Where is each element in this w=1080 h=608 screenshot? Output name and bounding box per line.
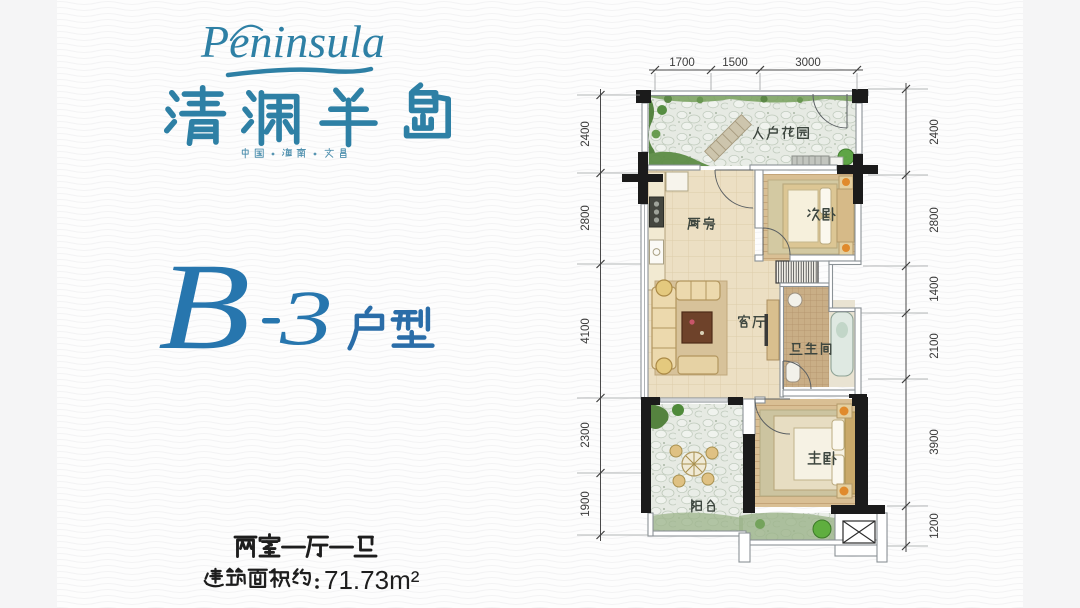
svg-text:3900: 3900 bbox=[929, 429, 941, 455]
svg-text:71.73m²: 71.73m² bbox=[324, 565, 420, 595]
svg-text:2400: 2400 bbox=[580, 121, 592, 147]
svg-text:2800: 2800 bbox=[580, 205, 592, 231]
svg-text:2400: 2400 bbox=[929, 119, 941, 145]
svg-text:2800: 2800 bbox=[929, 207, 941, 233]
svg-text:1700: 1700 bbox=[669, 57, 695, 69]
svg-text:B: B bbox=[158, 238, 250, 375]
svg-text:Peninsula: Peninsula bbox=[200, 16, 385, 67]
svg-text:3000: 3000 bbox=[795, 57, 821, 69]
svg-text:2300: 2300 bbox=[580, 422, 592, 448]
svg-text:1500: 1500 bbox=[722, 57, 748, 69]
svg-text:1200: 1200 bbox=[929, 513, 941, 539]
svg-text:3: 3 bbox=[279, 275, 333, 362]
svg-text:1400: 1400 bbox=[929, 276, 941, 302]
svg-text:2100: 2100 bbox=[929, 333, 941, 359]
svg-text:1900: 1900 bbox=[580, 491, 592, 517]
svg-text:4100: 4100 bbox=[580, 318, 592, 344]
